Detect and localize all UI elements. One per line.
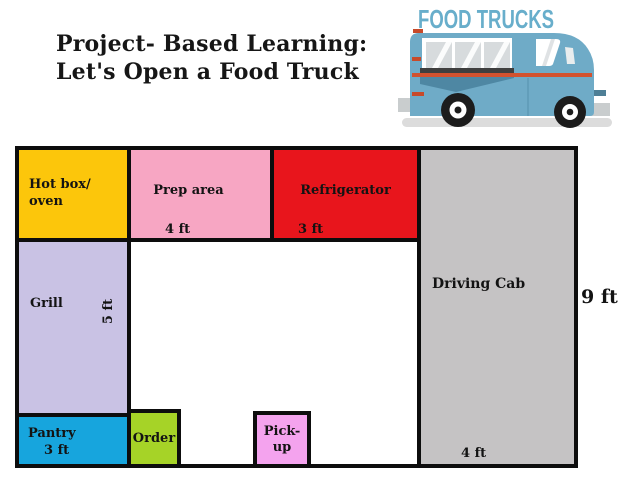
page-title-line2: Let's Open a Food Truck: [56, 58, 367, 86]
size-label-prep-area: 4 ft: [165, 222, 190, 237]
room-grill: Grill 5 ft: [15, 238, 131, 417]
size-label-pantry: 3 ft: [44, 443, 69, 458]
room-refrigerator: Refrigerator 3 ft: [270, 146, 421, 242]
room-order: Order: [127, 409, 181, 468]
truck-serving-window-panes: [426, 42, 510, 68]
floor-plan: Hot box/ oven Prep area 4 ft Refrigerato…: [15, 146, 578, 468]
truck-rear-wheel: [441, 93, 475, 127]
room-label-grill: Grill: [30, 295, 63, 312]
room-label-driving-cab: Driving Cab: [432, 276, 525, 293]
room-driving-cab: Driving Cab 4 ft: [417, 146, 578, 468]
worksheet-page: { "header": { "title_line1": "Project- B…: [0, 0, 624, 480]
truck-rear-bumper: [398, 98, 411, 112]
food-truck-svg: FOOD TRUCKS: [396, 2, 622, 142]
size-label-refrigerator: 3 ft: [298, 222, 323, 237]
overall-height-label: 9 ft: [581, 286, 618, 308]
room-prep-area: Prep area 4 ft: [127, 146, 274, 242]
food-trucks-logo-text: FOOD TRUCKS: [418, 4, 554, 34]
room-hot-box-oven: Hot box/ oven: [15, 146, 131, 242]
size-label-driving-cab: 4 ft: [461, 446, 486, 461]
food-truck-illustration: FOOD TRUCKS: [396, 2, 622, 142]
room-label-pick-up: Pick- up: [264, 424, 301, 456]
size-label-grill: 5 ft: [101, 299, 116, 324]
truck-front-wheel: [554, 96, 586, 128]
page-title-line1: Project- Based Learning:: [56, 30, 367, 58]
room-pick-up: Pick- up: [253, 411, 311, 468]
truck-side-step: [594, 90, 606, 96]
room-label-refrigerator: Refrigerator: [274, 182, 417, 199]
room-pantry: Pantry 3 ft: [15, 413, 131, 468]
room-label-order: Order: [133, 430, 175, 447]
truck-stripe: [412, 73, 592, 77]
page-title: Project- Based Learning: Let's Open a Fo…: [56, 30, 367, 86]
room-label-pantry: Pantry: [28, 425, 76, 442]
room-label-hot-box-oven: Hot box/ oven: [29, 176, 91, 210]
room-label-prep-area: Prep area: [131, 182, 246, 199]
